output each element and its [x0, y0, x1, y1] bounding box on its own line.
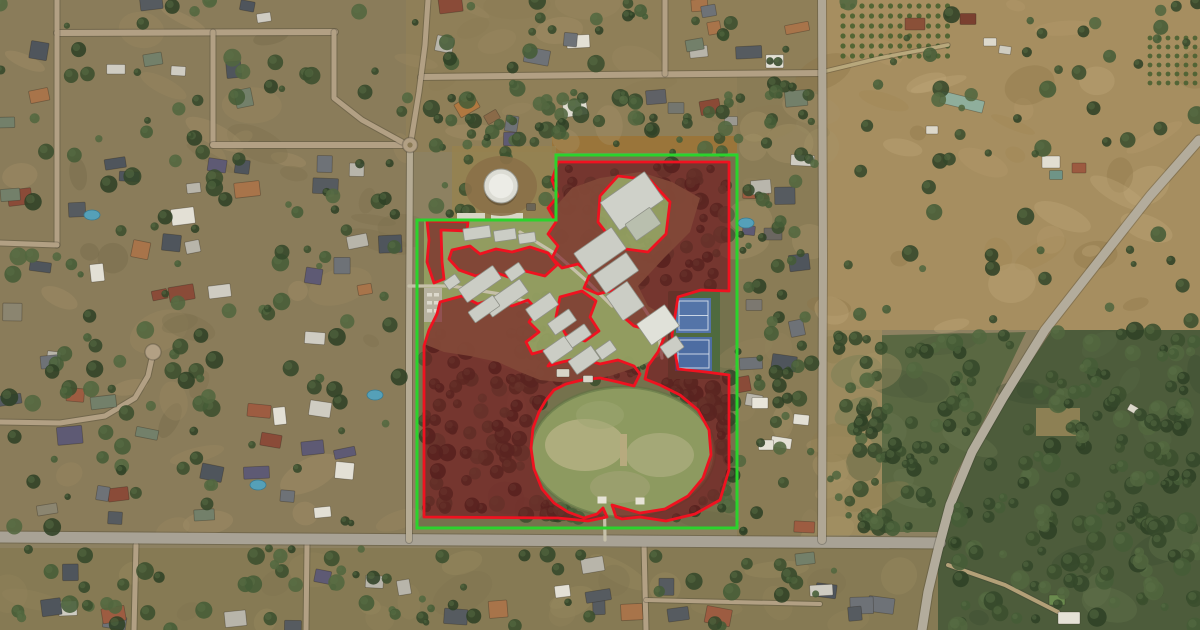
tree	[930, 419, 944, 433]
tree	[1186, 347, 1195, 356]
orchard-tree	[945, 53, 950, 58]
orchard-tree	[869, 3, 874, 8]
tree	[24, 545, 33, 554]
tree	[871, 478, 879, 486]
house	[0, 188, 20, 202]
tree	[791, 359, 805, 373]
tree	[146, 401, 156, 411]
tree	[999, 493, 1008, 502]
orchard-tree	[1157, 72, 1162, 77]
tree	[1038, 581, 1051, 594]
tree	[989, 315, 997, 323]
tree	[1079, 364, 1087, 372]
tree	[875, 342, 888, 355]
tree	[96, 451, 109, 464]
tree	[1033, 384, 1049, 400]
tree	[1125, 345, 1141, 361]
orchard-tree	[1184, 63, 1189, 68]
house	[186, 182, 201, 193]
tree	[1102, 137, 1112, 147]
tree	[854, 165, 867, 178]
farm-house-red	[960, 14, 976, 25]
tree	[433, 114, 443, 124]
tree	[882, 305, 891, 314]
tree	[613, 140, 620, 147]
tree	[150, 222, 158, 230]
tree	[1087, 608, 1106, 627]
tree	[1104, 491, 1116, 503]
farm-roof-red	[1072, 163, 1086, 173]
tree	[1131, 261, 1137, 267]
tree	[366, 571, 380, 585]
tree	[952, 571, 968, 587]
house	[334, 257, 350, 274]
orchard-tree	[935, 3, 940, 8]
tree	[758, 233, 767, 242]
tree	[30, 113, 40, 123]
tree	[853, 308, 866, 321]
tree	[787, 256, 797, 266]
tree	[328, 328, 346, 346]
tree	[303, 67, 321, 85]
house	[793, 414, 810, 426]
orchard-tree	[1157, 63, 1162, 68]
tree	[703, 106, 715, 118]
tree	[1126, 322, 1144, 340]
tree	[45, 364, 60, 379]
tree	[905, 346, 917, 358]
house	[90, 394, 117, 409]
tree	[190, 451, 203, 464]
house	[40, 598, 62, 617]
house	[554, 584, 571, 598]
orchard-tree	[1166, 81, 1171, 86]
tree	[352, 571, 359, 578]
tree	[43, 518, 61, 536]
tree	[119, 405, 135, 421]
tree	[998, 329, 1010, 341]
tree	[797, 340, 807, 350]
tree	[446, 209, 454, 217]
orchard-tree	[878, 13, 883, 18]
tree	[1053, 599, 1063, 609]
house	[284, 620, 301, 630]
tree	[923, 47, 938, 62]
tree	[906, 362, 923, 379]
tree	[390, 209, 400, 219]
tree	[777, 289, 788, 300]
tree	[460, 584, 467, 591]
tree	[130, 487, 142, 499]
tree	[931, 92, 946, 107]
tree	[723, 583, 741, 601]
satellite-map-view[interactable]	[0, 0, 1200, 630]
tree	[123, 167, 141, 185]
tree	[774, 215, 786, 227]
house	[208, 284, 232, 299]
tree	[61, 595, 79, 613]
tree	[902, 245, 919, 262]
tree	[529, 137, 539, 147]
tree	[382, 317, 397, 332]
tree	[629, 97, 642, 110]
tree	[958, 105, 965, 112]
tree	[1153, 20, 1168, 35]
tree	[764, 326, 779, 341]
tree	[1008, 498, 1018, 508]
tree	[201, 389, 216, 404]
tree	[634, 4, 647, 17]
tree	[724, 16, 738, 30]
house	[143, 52, 163, 67]
house	[171, 66, 186, 76]
tree	[1176, 278, 1190, 292]
street-west-mid	[0, 243, 57, 245]
tree	[264, 305, 272, 313]
tree	[1082, 564, 1091, 573]
tree	[1039, 81, 1056, 98]
orchard-tree	[1193, 72, 1198, 77]
tree	[25, 248, 39, 262]
tree	[288, 577, 303, 592]
house	[438, 0, 463, 14]
tree	[171, 295, 186, 310]
tree	[865, 427, 878, 440]
tree	[740, 527, 747, 534]
tree	[71, 42, 86, 57]
tree	[355, 159, 364, 168]
tree	[644, 122, 660, 138]
house	[243, 466, 269, 479]
tree	[164, 362, 181, 379]
tree	[920, 441, 933, 454]
tree	[1116, 329, 1128, 341]
tree	[939, 443, 949, 453]
tree	[464, 155, 474, 165]
farm-shed-1	[984, 38, 997, 46]
orchard-tree	[850, 23, 855, 28]
orchard-tree	[897, 43, 902, 48]
tree	[1064, 399, 1074, 409]
tree	[558, 118, 566, 126]
tree	[769, 85, 783, 99]
tree	[67, 148, 82, 163]
tree	[691, 17, 700, 26]
tree	[575, 550, 586, 561]
tree	[1116, 521, 1126, 531]
tree	[264, 79, 278, 93]
tree	[136, 562, 154, 580]
tree	[57, 346, 72, 361]
tree	[1160, 419, 1173, 432]
tree	[743, 184, 755, 196]
tree	[324, 550, 340, 566]
tree	[484, 134, 491, 141]
tree	[685, 573, 702, 590]
house	[184, 239, 201, 254]
tree	[807, 448, 814, 455]
orchard-tree	[859, 23, 864, 28]
tree	[1037, 246, 1045, 254]
tree	[100, 597, 113, 610]
tree	[1084, 515, 1102, 533]
tree	[972, 329, 987, 344]
house	[443, 608, 467, 625]
tree	[946, 396, 961, 411]
tree	[1041, 453, 1061, 473]
house	[848, 606, 863, 621]
tree	[1109, 597, 1121, 609]
orchard-tree	[916, 33, 921, 38]
swimming-pool	[84, 210, 100, 220]
tree	[89, 339, 103, 353]
tree	[533, 97, 547, 111]
tree	[86, 360, 103, 377]
tree	[1166, 256, 1175, 265]
orchard-tree	[897, 13, 902, 18]
tree	[862, 335, 871, 344]
water-tank-roof	[489, 174, 513, 198]
tree	[771, 259, 785, 273]
tree	[570, 89, 577, 96]
tree	[994, 502, 1006, 514]
orchard-tree	[859, 53, 864, 58]
orchard-tree	[850, 13, 855, 18]
tree	[786, 576, 792, 582]
swimming-pool	[738, 218, 754, 228]
tree	[845, 382, 856, 393]
orchard-tree	[888, 13, 893, 18]
tree	[358, 545, 365, 552]
tree	[283, 360, 299, 376]
tree	[447, 94, 456, 103]
orchard-tree	[850, 33, 855, 38]
tree	[1061, 552, 1080, 571]
street-bottom-vert-3	[644, 544, 646, 630]
tree	[439, 34, 455, 50]
house	[29, 40, 49, 60]
tree	[387, 240, 401, 254]
tree	[849, 331, 863, 345]
tree	[158, 210, 173, 225]
tree	[467, 129, 477, 139]
tree	[235, 64, 250, 79]
tree	[969, 545, 984, 560]
tree	[755, 374, 762, 381]
tree	[348, 520, 355, 527]
tree	[275, 245, 290, 260]
orchard-tree	[926, 23, 931, 28]
tree	[834, 332, 848, 346]
tree	[754, 379, 766, 391]
tree	[750, 506, 763, 519]
tree	[189, 6, 200, 17]
tree	[1171, 1, 1182, 12]
tree	[4, 266, 21, 283]
tree	[835, 493, 843, 501]
tree	[739, 247, 746, 254]
tree	[857, 520, 870, 533]
house	[314, 506, 332, 518]
oval-structure	[636, 498, 645, 505]
tree	[273, 293, 290, 310]
tree	[232, 152, 245, 165]
street-bottom-vert-2	[306, 545, 307, 630]
orchard-tree	[1175, 81, 1180, 86]
tree	[51, 456, 58, 463]
tree	[136, 321, 154, 339]
tree	[552, 563, 564, 575]
tree	[1107, 394, 1121, 408]
tree	[201, 498, 214, 511]
tree	[827, 476, 834, 483]
tree	[772, 378, 787, 393]
tree	[177, 462, 190, 475]
orchard-tree	[850, 53, 855, 58]
tree	[187, 132, 194, 139]
house	[62, 564, 78, 581]
tree	[206, 179, 223, 196]
tree	[1113, 532, 1133, 552]
tree	[951, 554, 968, 571]
tree	[961, 600, 971, 610]
oval-dry-patch	[545, 419, 625, 471]
tree	[140, 125, 153, 138]
house	[357, 283, 373, 296]
orchard-tree	[1157, 45, 1162, 50]
tree	[528, 28, 536, 36]
tree	[116, 465, 126, 475]
orchard-tree	[1193, 63, 1198, 68]
house	[304, 331, 325, 345]
house	[774, 187, 795, 205]
tree	[285, 201, 292, 208]
orchard-tree	[1184, 81, 1189, 86]
tree	[943, 153, 956, 166]
tree	[985, 149, 992, 156]
tree	[1032, 150, 1039, 157]
tree	[1086, 531, 1106, 551]
tree	[882, 403, 893, 414]
tree	[919, 265, 926, 272]
tree	[328, 574, 344, 590]
tree	[1132, 506, 1145, 519]
orchard-tree	[878, 43, 883, 48]
tree	[959, 398, 974, 413]
tree	[1130, 471, 1146, 487]
tree	[628, 110, 644, 126]
tree	[587, 55, 604, 72]
tree	[116, 225, 127, 236]
house	[308, 400, 332, 418]
house	[161, 234, 181, 252]
orchard-tree	[926, 33, 931, 38]
tree	[1047, 564, 1063, 580]
street-top-cross	[421, 73, 822, 77]
tree	[1144, 324, 1161, 341]
tree	[955, 129, 966, 140]
tree	[1038, 272, 1052, 286]
tree	[1089, 17, 1101, 29]
tree	[1161, 603, 1169, 611]
tree	[172, 102, 185, 115]
house	[396, 579, 411, 596]
tree	[798, 110, 808, 120]
tree	[885, 521, 900, 536]
tree	[764, 116, 776, 128]
orchard-tree	[888, 23, 893, 28]
tree	[629, 12, 635, 18]
tree	[888, 437, 902, 451]
tree	[802, 89, 814, 101]
tree	[1182, 38, 1190, 46]
tree	[83, 381, 99, 397]
tree	[654, 586, 665, 597]
tree	[351, 4, 367, 20]
tree	[1172, 421, 1188, 437]
tree	[985, 248, 999, 262]
tree	[1153, 34, 1162, 43]
tree	[839, 399, 853, 413]
tree	[773, 57, 782, 66]
tree	[359, 595, 375, 611]
house	[795, 552, 815, 566]
tree	[922, 180, 936, 194]
orchard-tree	[869, 23, 874, 28]
tree	[965, 88, 978, 101]
cricket-pitch	[620, 434, 627, 466]
tree	[194, 328, 209, 343]
tree	[782, 393, 793, 404]
tree	[459, 91, 476, 108]
tree	[77, 547, 93, 563]
tree	[222, 303, 237, 318]
orchard-tree	[850, 43, 855, 48]
tree	[788, 83, 797, 92]
tree	[774, 587, 790, 603]
tree	[83, 309, 96, 322]
tree	[195, 145, 210, 160]
tree	[1090, 376, 1102, 388]
tree	[1050, 488, 1068, 506]
orchard-tree	[840, 33, 845, 38]
tree	[316, 263, 322, 269]
orchard-tree	[859, 43, 864, 48]
house	[107, 64, 126, 74]
tree	[766, 57, 773, 64]
oval-dry-patch	[626, 433, 694, 477]
tree	[427, 605, 435, 613]
tree	[1157, 350, 1168, 361]
satellite-canvas	[0, 0, 1200, 630]
east-white-house-1	[752, 398, 768, 409]
orchard-tree	[878, 3, 883, 8]
house	[170, 207, 195, 226]
tree	[1037, 28, 1048, 39]
tree	[391, 368, 408, 385]
house	[256, 12, 271, 23]
house	[301, 440, 325, 456]
tree	[519, 549, 531, 561]
tree	[423, 619, 430, 626]
orchard-tree	[1193, 36, 1198, 41]
shed-northeast	[905, 18, 925, 30]
tree	[144, 117, 151, 124]
tree	[466, 93, 474, 101]
tree	[717, 503, 726, 512]
tree	[402, 92, 413, 103]
tree	[1154, 122, 1168, 136]
